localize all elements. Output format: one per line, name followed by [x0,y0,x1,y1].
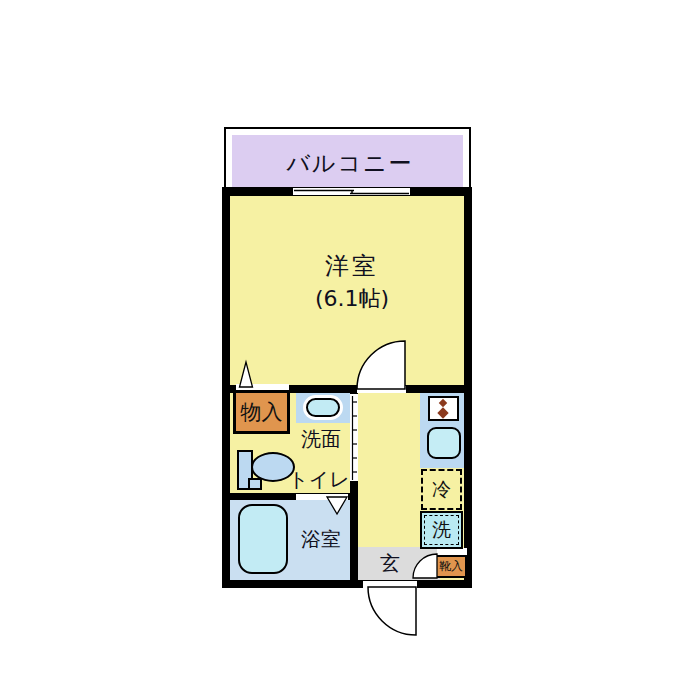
entrance-label: 玄 [380,550,400,577]
bathroom-doorway [296,494,348,500]
washer-space: 洗 [420,511,463,549]
fridge-label: 冷 [432,477,451,503]
shoebox-label: 靴入 [439,558,463,575]
kitchen-sink-icon [427,427,461,459]
washbasin-label: 洗面 [301,426,341,453]
main-room-size-label: (6.1帖) [315,284,389,314]
washbasin-icon [306,398,340,417]
washroom-door [350,394,358,481]
closet-box: 物入 [233,390,290,434]
fridge-space: 冷 [421,469,462,510]
entrance-door-arc [368,587,416,635]
balcony-window [293,187,410,196]
shoebox: 靴入 [435,555,467,578]
washer-label: 洗 [432,517,451,543]
bathroom-label: 浴室 [301,526,341,553]
closet-label: 物入 [241,398,283,426]
balcony-label: バルコニー [286,148,413,179]
main-room-label: 洋室 [325,250,379,282]
floorplan-canvas: バルコニー 物入 冷 洗 靴入 洋室 (6.1帖) 洗面 ト [0,0,700,700]
toilet-base-icon [248,478,262,490]
toilet-label: トイレ [288,466,349,493]
wall-bottom [222,580,472,588]
room-doorway [357,386,406,393]
bathtub-icon [238,504,288,574]
washer-inner: 洗 [424,515,459,545]
entrance-doorway [363,581,417,588]
